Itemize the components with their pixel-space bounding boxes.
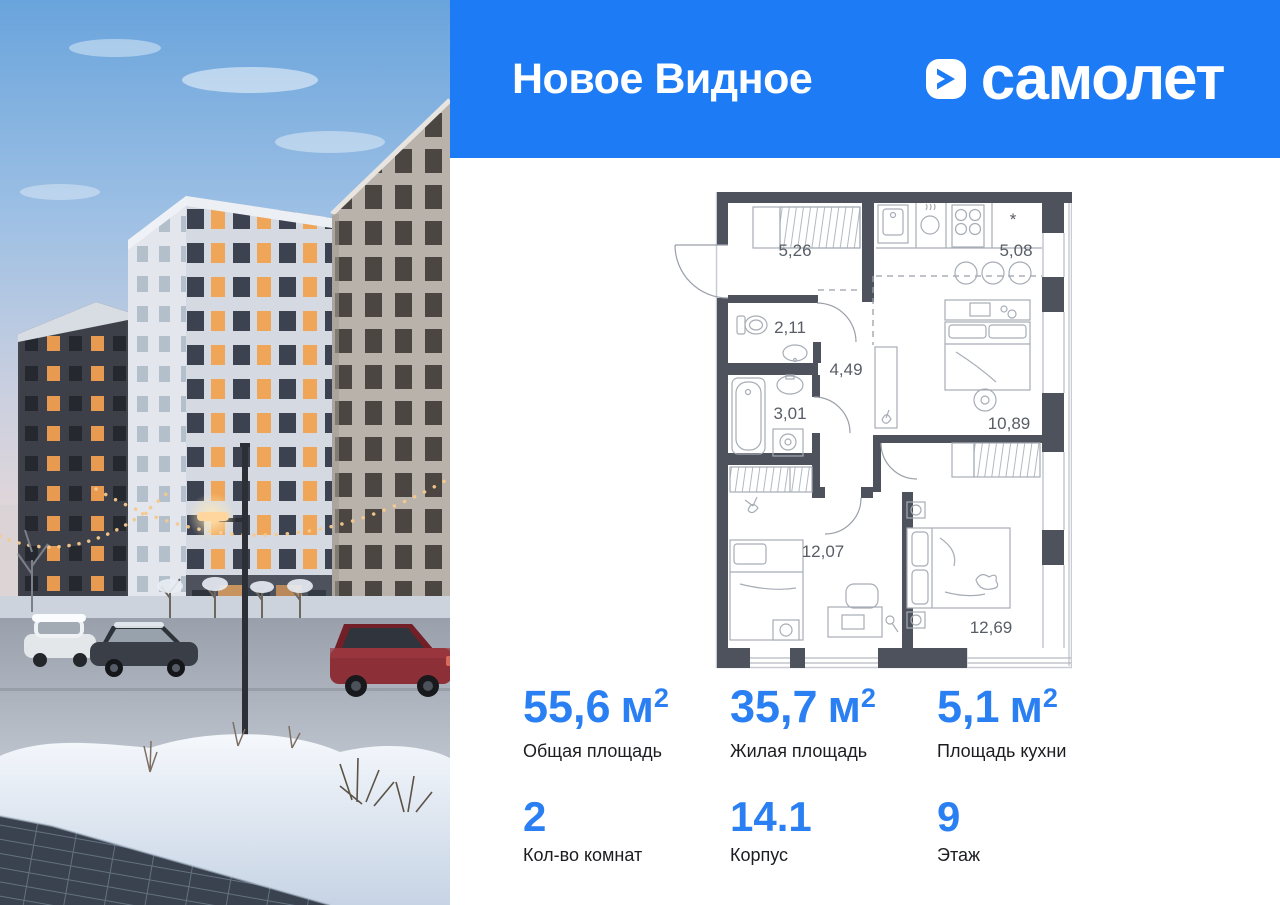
stat-living-area: 35,7м2 Жилая площадь [730, 682, 937, 763]
stat-floor-label: Этаж [937, 843, 1183, 867]
building-middle [128, 196, 332, 645]
photo-scene [0, 0, 450, 905]
stat-floor-value: 9 [937, 792, 1183, 842]
stat-kitchen-area-value: 5,1м2 [937, 682, 1183, 738]
stat-total-area: 55,6м2 Общая площадь [523, 682, 730, 763]
stat-kitchen-area: 5,1м2 Площадь кухни [937, 682, 1183, 763]
stat-floor: 9 Этаж [937, 792, 1183, 867]
stat-living-area-value: 35,7м2 [730, 682, 937, 738]
room-label-corridor: 4,49 [829, 360, 862, 379]
stat-living-area-label: Жилая площадь [730, 739, 937, 763]
brand-logo: самолет [926, 59, 1224, 99]
stat-building: 14.1 Корпус [730, 792, 937, 867]
stat-rooms-label: Кол-во комнат [523, 843, 730, 867]
room-label-living: 10,89 [988, 414, 1031, 433]
header: Новое Видное самолет [450, 0, 1280, 158]
room-label-bedroom2: 12,69 [970, 618, 1013, 637]
stat-building-label: Корпус [730, 843, 937, 867]
room-label-bedroom1: 12,07 [802, 542, 845, 561]
stat-rooms: 2 Кол-во комнат [523, 792, 730, 867]
brand-name: самолет [981, 59, 1224, 99]
floor-plan: 5,26 5,08 2,11 4,49 3,01 10,89 12,07 12,… [640, 192, 1072, 676]
stat-total-area-value: 55,6м2 [523, 682, 730, 738]
stats-grid: 55,6м2 Общая площадь 35,7м2 Жилая площад… [523, 682, 1183, 867]
listing-card: Новое Видное самолет [0, 0, 1280, 905]
room-label-wc: 2,11 [774, 318, 806, 337]
room-label-hallway: 5,26 [778, 241, 811, 260]
floor-plan-drawing: 5,26 5,08 2,11 4,49 3,01 10,89 12,07 12,… [640, 192, 1072, 676]
stat-rooms-value: 2 [523, 792, 730, 842]
stat-kitchen-area-label: Площадь кухни [937, 739, 1183, 763]
room-label-bathroom: 3,01 [773, 404, 806, 423]
samolet-logo-icon [926, 59, 966, 99]
building-left [18, 302, 128, 645]
stat-building-value: 14.1 [730, 792, 937, 842]
building-photo [0, 0, 450, 905]
project-title: Новое Видное [512, 55, 812, 104]
stat-total-area-label: Общая площадь [523, 739, 730, 763]
room-label-kitchen: 5,08 [999, 241, 1032, 260]
fridge-symbol: * [1010, 210, 1017, 229]
